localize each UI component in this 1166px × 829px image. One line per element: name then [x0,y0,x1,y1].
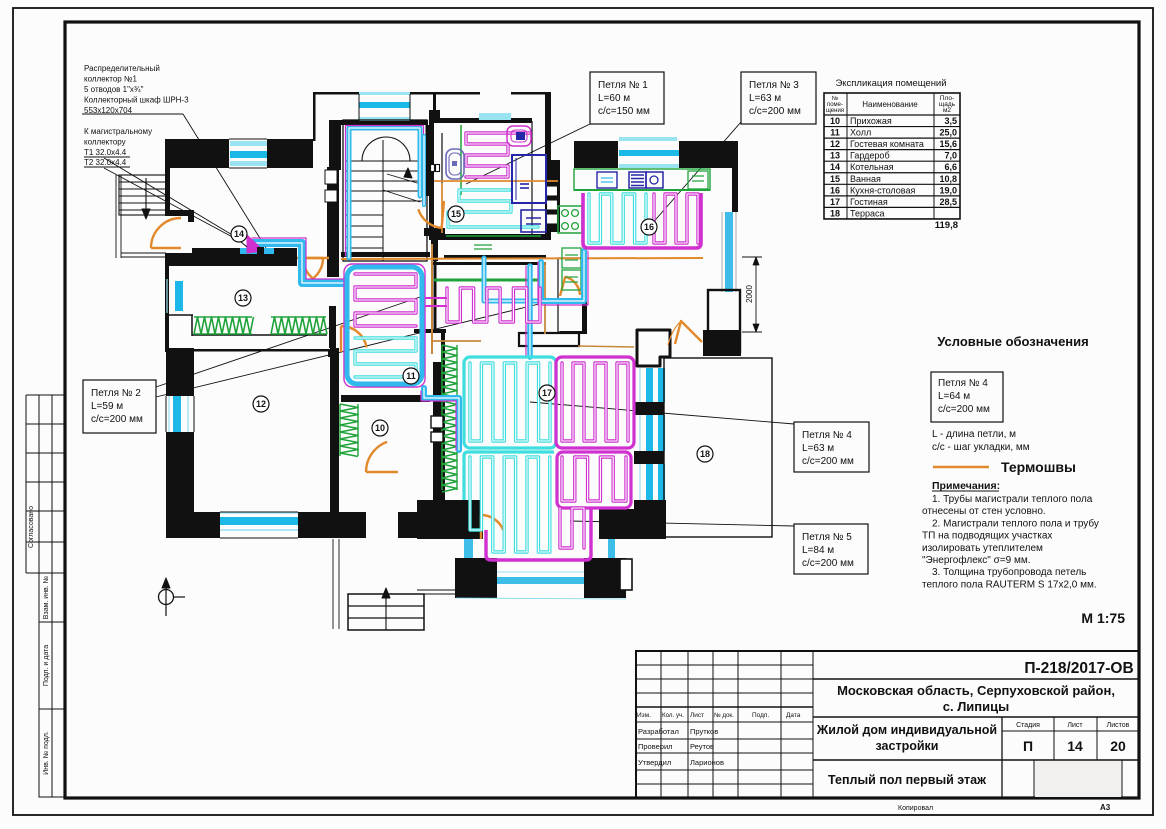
svg-text:ТП на подводящих участках: ТП на подводящих участках [922,531,1052,542]
svg-text:13: 13 [238,293,248,303]
svg-text:Дата: Дата [786,712,801,719]
svg-text:с/с=150 мм: с/с=150 мм [598,106,650,117]
svg-text:Взам. инв. №: Взам. инв. № [43,576,50,619]
svg-text:10,8: 10,8 [939,174,957,184]
svg-text:изолировать утеплителем: изолировать утеплителем [922,543,1043,554]
svg-text:L=60 м: L=60 м [598,93,630,104]
svg-text:А3: А3 [1100,803,1111,812]
svg-text:Примечания:: Примечания: [932,480,1000,492]
svg-text:Стадия: Стадия [1016,722,1040,729]
svg-text:2. Магистрали теплого пола и т: 2. Магистрали теплого пола и трубу [932,517,1099,529]
svg-text:Терраса: Терраса [850,208,885,218]
svg-text:Подп. и дата: Подп. и дата [43,645,50,686]
svg-text:щения: щения [826,108,844,114]
svg-text:П: П [1023,738,1033,754]
svg-text:К магистральному: К магистральному [84,127,152,136]
svg-text:Петля № 3: Петля № 3 [749,80,799,91]
svg-text:Проверил: Проверил [638,742,673,751]
svg-text:14: 14 [1067,738,1083,754]
svg-text:L=59 м: L=59 м [91,401,123,412]
svg-text:м2: м2 [943,107,951,114]
svg-text:Подп.: Подп. [752,712,769,719]
svg-text:М 1:75: М 1:75 [1081,610,1125,626]
svg-text:Инв. № подл.: Инв. № подл. [43,731,50,775]
svg-text:19,0: 19,0 [939,185,957,195]
svg-text:Московская область, Серпуховск: Московская область, Серпуховской район, [837,683,1115,698]
svg-text:L=84 м: L=84 м [802,545,834,556]
svg-text:застройки: застройки [876,739,939,753]
svg-text:с/с - шаг укладки, мм: с/с - шаг укладки, мм [932,442,1030,453]
svg-text:Кухня-столовая: Кухня-столовая [850,185,915,195]
svg-text:5 отводов 1"х¾": 5 отводов 1"х¾" [84,85,144,94]
svg-text:L=63 м: L=63 м [749,93,781,104]
svg-text:119,8: 119,8 [935,220,958,231]
svg-text:с/с=200 мм: с/с=200 мм [938,404,990,415]
svg-text:коллектору: коллектору [84,138,126,147]
svg-text:Утвердил: Утвердил [638,758,671,767]
svg-text:Термошвы: Термошвы [1001,459,1076,475]
svg-text:Кол. уч.: Кол. уч. [662,712,684,719]
svg-text:11: 11 [830,128,840,138]
svg-text:Гостиная: Гостиная [850,197,888,207]
svg-text:Холл: Холл [850,128,871,138]
svg-text:отнесены от стен условно.: отнесены от стен условно. [922,506,1046,517]
svg-text:20: 20 [1110,738,1126,754]
svg-text:1. Трубы магистрали теплого по: 1. Трубы магистрали теплого пола [932,493,1093,505]
svg-text:16: 16 [830,185,840,195]
svg-text:Разработал: Разработал [638,727,679,736]
svg-text:6,6: 6,6 [944,162,957,172]
svg-text:10: 10 [375,423,385,433]
svg-text:Котельная: Котельная [850,162,894,172]
svg-text:11: 11 [406,371,416,381]
svg-text:Лист: Лист [1067,722,1083,729]
svg-text:12: 12 [256,399,266,409]
svg-text:Условные обозначения: Условные обозначения [937,334,1088,349]
svg-text:Гардероб: Гардероб [850,151,890,161]
svg-text:Петля № 2: Петля № 2 [91,388,141,399]
svg-text:№ док.: № док. [714,712,734,719]
svg-text:Т1 32.0х4.4: Т1 32.0х4.4 [84,148,127,157]
svg-text:с/с=200 мм: с/с=200 мм [749,106,801,117]
svg-text:16: 16 [644,222,654,232]
svg-text:3. Толщина трубопровода петель: 3. Толщина трубопровода петель [932,566,1086,578]
svg-text:с/с=200 мм: с/с=200 мм [91,414,143,425]
svg-text:15: 15 [451,209,461,219]
svg-text:№: № [832,95,838,102]
svg-text:Петля № 5: Петля № 5 [802,532,852,543]
svg-text:Ванная: Ванная [850,174,881,184]
svg-text:18: 18 [830,208,840,218]
svg-text:2000: 2000 [745,285,754,303]
svg-text:17: 17 [830,197,840,207]
svg-text:Реутов: Реутов [690,742,714,751]
svg-text:25,0: 25,0 [939,128,957,138]
svg-text:13: 13 [830,151,840,161]
svg-text:с/с=200 мм: с/с=200 мм [802,456,854,467]
svg-text:18: 18 [700,449,710,459]
svg-text:коллектор №1: коллектор №1 [84,75,138,84]
svg-text:Петля № 4: Петля № 4 [938,378,988,389]
svg-text:12: 12 [830,139,840,149]
svg-text:Теплый пол первый этаж: Теплый пол первый этаж [828,773,986,787]
svg-text:"Энергофлекс" σ=9 мм.: "Энергофлекс" σ=9 мм. [922,554,1030,566]
svg-text:Изм.: Изм. [637,712,651,719]
svg-text:Петля № 4: Петля № 4 [802,430,852,441]
svg-text:L=64 м: L=64 м [938,391,970,402]
svg-text:L - длина петли, м: L - длина петли, м [932,429,1016,440]
svg-text:Листов: Листов [1107,722,1130,729]
svg-text:Жилой дом индивидуальной: Жилой дом индивидуальной [816,723,997,737]
svg-text:17: 17 [542,388,552,398]
svg-text:3,5: 3,5 [944,116,957,126]
svg-text:Прутков: Прутков [690,727,718,736]
svg-text:15,6: 15,6 [939,139,957,149]
svg-text:с/с=200 мм: с/с=200 мм [802,558,854,569]
svg-text:Распределительный: Распределительный [84,64,160,73]
svg-text:Согласовано: Согласовано [28,506,35,548]
svg-text:Экспликация помещений: Экспликация помещений [835,78,946,89]
svg-text:П-218/2017-ОВ: П-218/2017-ОВ [1024,660,1133,677]
svg-text:Лист: Лист [690,712,704,719]
svg-text:Прихожая: Прихожая [850,116,892,126]
svg-text:Копировал: Копировал [898,805,933,812]
svg-text:10: 10 [830,116,840,126]
svg-text:Гостевая комната: Гостевая комната [850,139,924,149]
svg-text:14: 14 [830,162,840,172]
svg-text:15: 15 [830,174,840,184]
svg-text:Петля № 1: Петля № 1 [598,80,648,91]
svg-text:L=63 м: L=63 м [802,443,834,454]
svg-text:Ларионов: Ларионов [690,758,724,767]
svg-text:Наименование: Наименование [862,100,918,109]
svg-text:28,5: 28,5 [939,197,957,207]
svg-text:14: 14 [234,229,244,239]
svg-text:теплого пола RAUTERM S 17х2,0: теплого пола RAUTERM S 17х2,0 мм. [922,579,1097,590]
svg-text:с. Липицы: с. Липицы [943,699,1010,714]
svg-text:Коллекторный шкаф ШРН-3: Коллекторный шкаф ШРН-3 [84,96,189,105]
svg-text:7,0: 7,0 [944,151,957,161]
